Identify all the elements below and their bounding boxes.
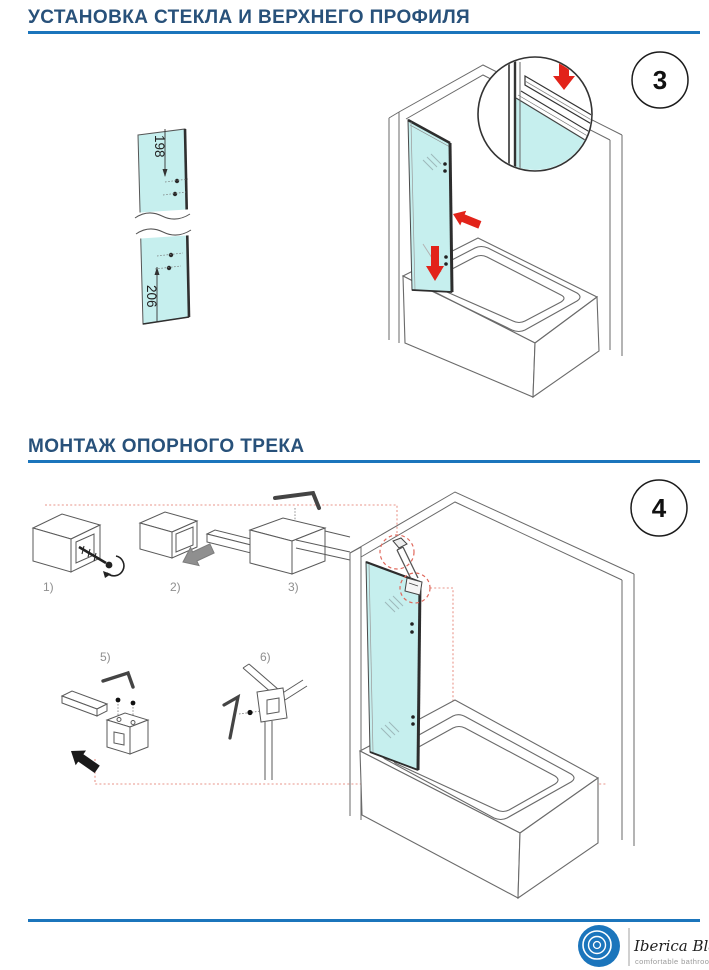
break-gap	[133, 209, 194, 239]
brand-logo: Iberica Blanca comfortable bathroom	[568, 925, 709, 970]
hex-key-icon	[224, 697, 238, 738]
brand-tagline: comfortable bathroom	[635, 957, 709, 966]
step-5-illustration	[62, 673, 148, 777]
step-label-2: 2)	[170, 580, 181, 594]
step-label-6: 6)	[260, 650, 271, 664]
dim-label-198: 198	[152, 135, 167, 158]
zoom-inset-top-profile	[478, 56, 595, 183]
step-badge-3: 3	[632, 52, 688, 108]
step-label-5: 5)	[100, 650, 111, 664]
hex-key-icon	[275, 493, 319, 508]
section2-underline	[28, 460, 700, 463]
section1-title: УСТАНОВКА СТЕКЛА И ВЕРХНЕГО ПРОФИЛЯ	[28, 7, 470, 29]
hex-key-icon	[103, 673, 133, 687]
step-2-illustration	[140, 512, 263, 571]
section1-underline	[28, 31, 700, 34]
glass-panel-with-dimensions: 198 206	[133, 129, 194, 324]
step-badge-4: 4	[631, 480, 687, 536]
arrow-down-left-icon	[66, 744, 103, 777]
manual-page: УСТАНОВКА СТЕКЛА И ВЕРХНЕГО ПРОФИЛЯ 198	[0, 0, 709, 970]
step-1-illustration	[33, 514, 124, 578]
brand-name: Iberica Blanca	[633, 937, 709, 955]
step-label-1: 1)	[43, 580, 54, 594]
step-number: 3	[653, 65, 667, 95]
concentric-rings-logo-icon	[578, 925, 620, 967]
glass-dimension-diagram: 198 206	[95, 105, 255, 345]
install-glass-diagram: 3	[373, 38, 709, 416]
step-label-3: 3)	[288, 580, 299, 594]
footer-divider	[28, 919, 700, 922]
arrow-left-icon	[450, 207, 483, 233]
dim-label-206: 206	[144, 285, 159, 308]
step-number: 4	[652, 493, 667, 523]
mounting-track-diagram: 1) 2) 3)	[15, 468, 709, 918]
step-6-illustration	[224, 664, 307, 780]
section2-title: МОНТАЖ ОПОРНОГО ТРЕКА	[28, 436, 305, 458]
